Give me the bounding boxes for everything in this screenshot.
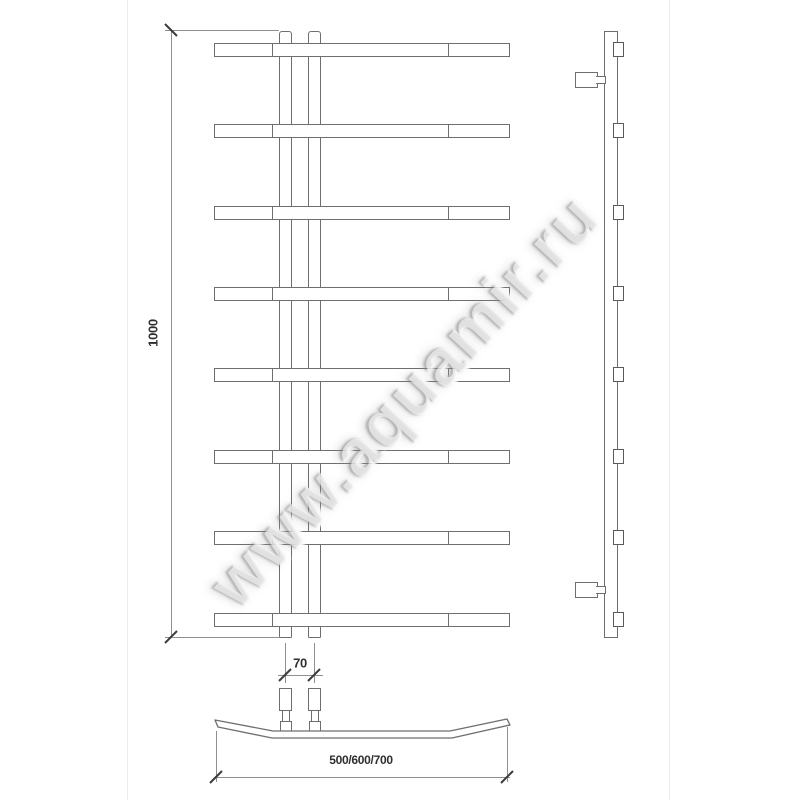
curved-bar-plan bbox=[0, 0, 800, 800]
width-dimension-label: 500/600/700 bbox=[329, 753, 392, 767]
width-dimension-line bbox=[214, 777, 510, 778]
product-drawing: 1000 70 500/6 bbox=[0, 0, 800, 800]
